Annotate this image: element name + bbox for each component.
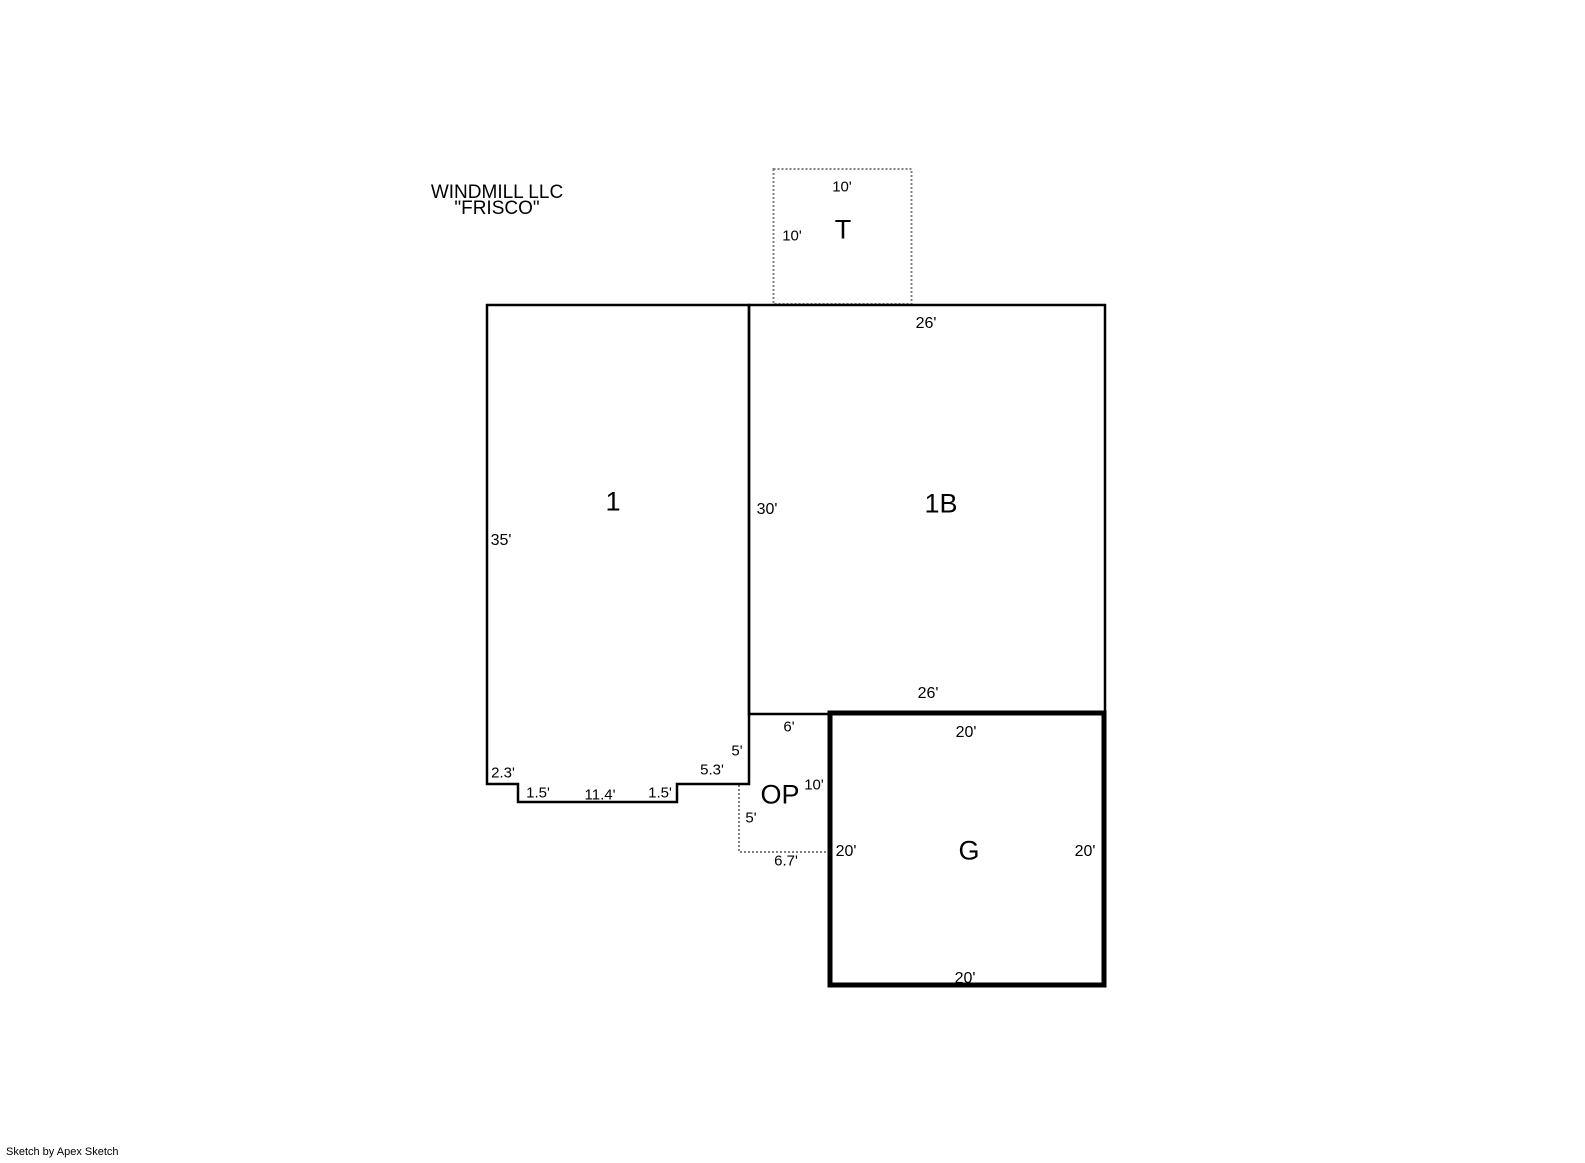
open-porch-dim-bottom: 6.7' [774,853,798,870]
unit-1-dim-notch-6: 5' [731,743,742,760]
unit-t-label: T [835,215,852,246]
unit-1-dim-notch-2: 1.5' [526,785,550,802]
sketch-title-line2: "FRISCO" [431,201,563,217]
unit-1-outline [487,305,749,802]
unit-1b-dim-top: 26' [916,315,937,333]
garage-dim-bottom: 20' [955,970,976,988]
open-porch-dim-right: 10' [804,777,824,794]
unit-1b-dim-bottom: 26' [918,685,939,703]
unit-t-dim-top: 10' [832,179,852,196]
open-porch-label: OP [760,780,799,811]
unit-1-label: 1 [605,487,620,518]
sketch-title: WINDMILL LLC "FRISCO" [431,185,563,217]
open-porch-dim-top: 6' [783,719,794,736]
unit-t-dim-left: 10' [782,228,802,245]
unit-1-dim-notch-5: 5.3' [700,762,724,779]
garage-dim-right: 20' [1075,843,1096,861]
unit-1b-label: 1B [924,489,957,520]
unit-1-dim-notch-4: 1.5' [648,785,672,802]
garage-dim-top: 20' [956,724,977,742]
unit-1b-dim-left: 30' [757,501,778,519]
unit-1-dim-left: 35' [491,532,512,550]
open-porch-dim-left: 5' [745,810,756,827]
floorplan-canvas [0,0,1585,1163]
apex-sketch-credit: Sketch by Apex Sketch [6,1146,119,1158]
unit-1-dim-notch-1: 2.3' [491,765,515,782]
unit-1-dim-notch-3: 11.4' [585,787,616,804]
floorplan-sketch: WINDMILL LLC "FRISCO" 10' 10' T 1 35' 2.… [0,0,1585,1163]
garage-dim-left: 20' [836,843,857,861]
garage-label: G [958,836,979,867]
